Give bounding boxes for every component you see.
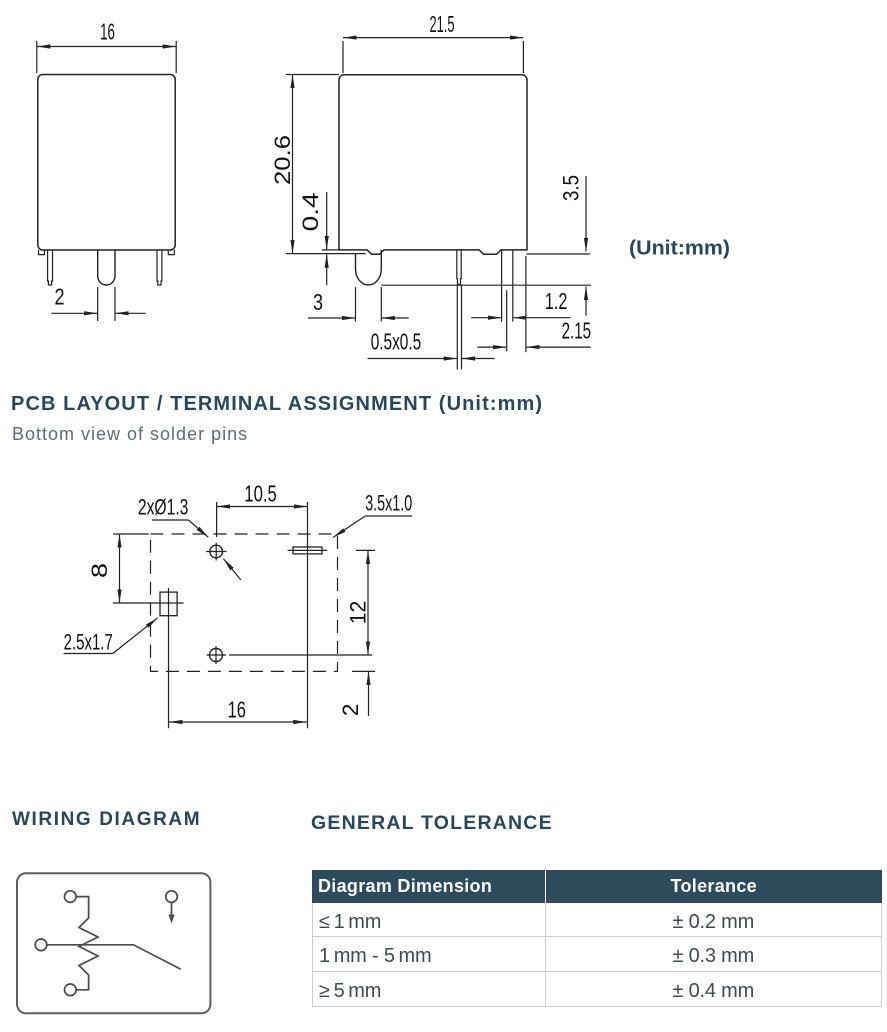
svg-text:21.5: 21.5 (430, 11, 455, 37)
svg-text:(Unit:mm): (Unit:mm) (629, 238, 730, 260)
svg-text:0.5x0.5: 0.5x0.5 (371, 329, 422, 355)
svg-text:2.5x1.7: 2.5x1.7 (64, 630, 113, 655)
svg-text:20.6: 20.6 (270, 135, 295, 185)
svg-text:2.15: 2.15 (562, 318, 592, 344)
svg-text:0.4: 0.4 (298, 192, 323, 231)
svg-text:10.5: 10.5 (244, 481, 276, 507)
svg-text:1.2: 1.2 (545, 288, 568, 314)
svg-text:2: 2 (55, 284, 65, 310)
svg-text:16: 16 (228, 697, 246, 723)
svg-text:8: 8 (87, 563, 112, 578)
svg-text:16: 16 (100, 19, 115, 45)
svg-text:12: 12 (346, 601, 371, 625)
svg-text:3: 3 (313, 289, 323, 315)
svg-text:3.5: 3.5 (559, 175, 584, 201)
svg-text:2: 2 (338, 704, 363, 717)
svg-text:3.5x1.0: 3.5x1.0 (365, 491, 412, 516)
svg-text:2xØ1.3: 2xØ1.3 (138, 495, 189, 520)
